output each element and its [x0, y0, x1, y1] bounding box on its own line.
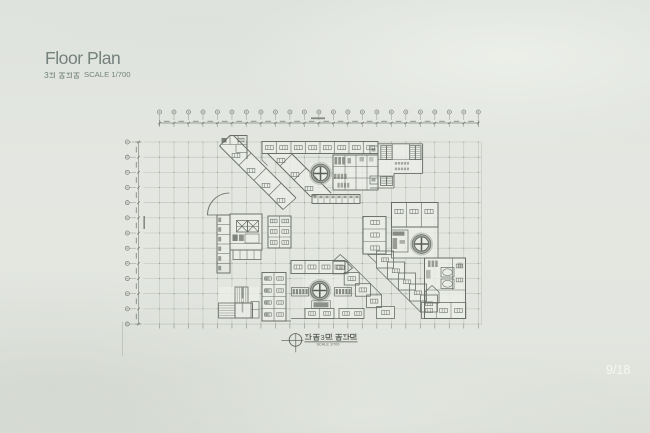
svg-text:3: 3: [321, 333, 325, 342]
svg-text:SCALE 1/700: SCALE 1/700: [317, 342, 340, 346]
